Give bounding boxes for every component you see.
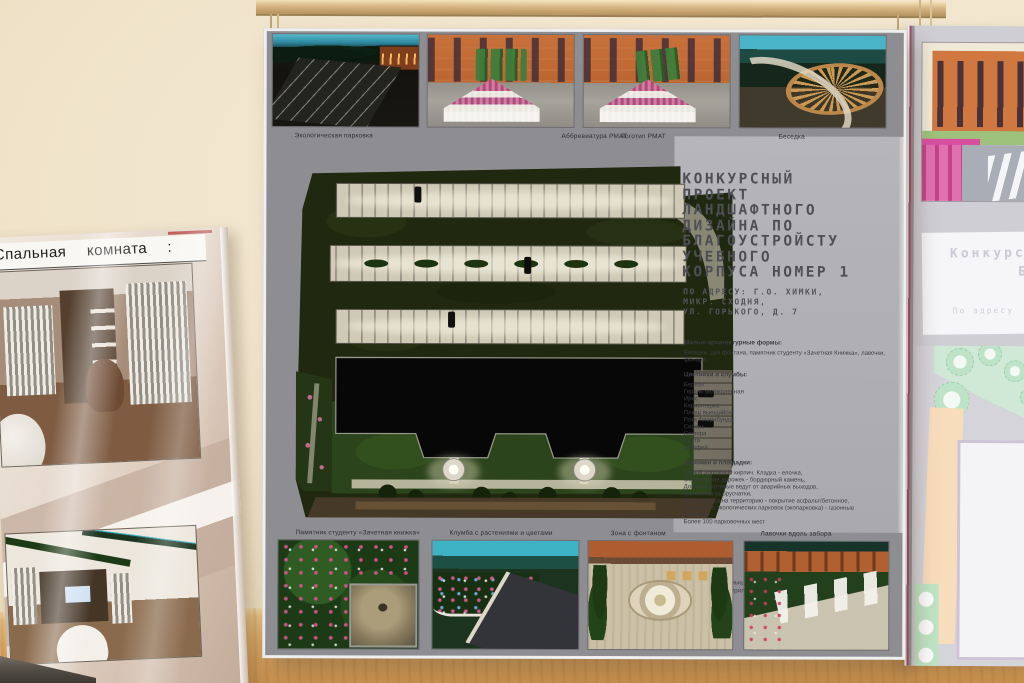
- bedroom-poster: Спальная комната :: [0, 227, 249, 683]
- caption-monument: Памятник студенту «Зачетная книжка»: [295, 529, 420, 536]
- paths-description: Серый дорожный кирпич. Кладка - елочка, …: [684, 470, 890, 527]
- caption-eco-parking: Экологическая парковка: [295, 132, 373, 139]
- render-rmat-logo: [583, 34, 731, 128]
- caption-rmat-abbreviation: Аббревиатура РМАТ: [562, 133, 628, 140]
- render-eco-parking: [272, 33, 420, 127]
- render-rmat-abbreviation: [427, 34, 575, 128]
- site-plan-night-render: [296, 161, 744, 520]
- render-fountain-zone: [587, 540, 733, 650]
- poster-title: КОНКУРСНЫЙ ПРОЕКТ ЛАНДШАФТНОГО ДИЗАЙНА П…: [682, 172, 902, 281]
- hedge-logo: [635, 47, 682, 83]
- plan-circle: [918, 620, 933, 635]
- caption-benches: Лавочки вдоль забора: [760, 530, 831, 537]
- stone-monument-inset: [349, 583, 418, 648]
- flower-planter: [444, 79, 540, 122]
- plan-circle: [918, 648, 933, 663]
- round-fountain: [628, 580, 693, 621]
- flower-planter: [600, 79, 696, 122]
- parking-grid: [272, 57, 402, 127]
- right-poster-site-plan: [914, 346, 1024, 667]
- tree-symbol: [1004, 360, 1024, 382]
- maf-body: Беседки, два фонтана, памятник студенту …: [684, 350, 890, 365]
- orange-building: [932, 51, 1024, 136]
- flower-speckles: [744, 574, 787, 650]
- paths-heading: Дорожки и площадки:: [684, 459, 890, 467]
- poster-address: ПО АДРЕСУ: Г.О. ХИМКИ, МИКР. СХОДНЯ, УЛ.…: [683, 287, 895, 318]
- plan-circle: [919, 592, 934, 607]
- right-poster: Конкурс Б По адресу: [904, 26, 1024, 667]
- caption-rmat-logo: Логотип РМАТ: [621, 133, 666, 140]
- maf-heading: Малые архитектурные формы:: [684, 339, 890, 347]
- right-poster-building-render: [921, 42, 1024, 203]
- caption-gazebo: Беседка: [779, 134, 805, 141]
- landscape-design-poster: Экологическая парковка Аббревиатура РМАТ…: [262, 28, 907, 660]
- render-monument: [277, 539, 419, 649]
- plants-heading: Цветники и клумбы:: [684, 371, 890, 379]
- crosswalk: [988, 146, 1024, 202]
- bushes: [588, 565, 611, 641]
- right-poster-address-fragment: По адресу: [953, 306, 1014, 316]
- render-benches-fence: [743, 540, 889, 650]
- right-poster-title-panel: Конкурс Б По адресу: [922, 231, 1024, 335]
- plants-list: Береза Герань великолепная Ирис Кариопте…: [684, 382, 890, 453]
- right-poster-title-fragment: Б: [1018, 265, 1024, 280]
- green-edge-strip: [914, 584, 938, 667]
- render-gazebo: [739, 34, 887, 128]
- right-poster-title-fragment: Конкурс: [950, 246, 1024, 262]
- caption-fountain-zone: Зона с фонтаном: [610, 530, 665, 537]
- poster-info-column: Малые архитектурные формы: Беседки, два …: [684, 332, 891, 527]
- hedge-letters: [476, 49, 527, 81]
- tree-symbol: [946, 348, 974, 376]
- exhibition-wall-photo: Конкурс Б По адресу: [0, 0, 1024, 683]
- render-flowerbed: [431, 540, 579, 650]
- glossy-reflection: [0, 227, 249, 683]
- caption-flowerbed: Клумба с растениями и цветами: [449, 530, 552, 537]
- building-footprint: [956, 440, 1024, 661]
- fence-posts: [744, 551, 888, 572]
- benches: [666, 571, 712, 580]
- curtain-rail: [256, 0, 946, 18]
